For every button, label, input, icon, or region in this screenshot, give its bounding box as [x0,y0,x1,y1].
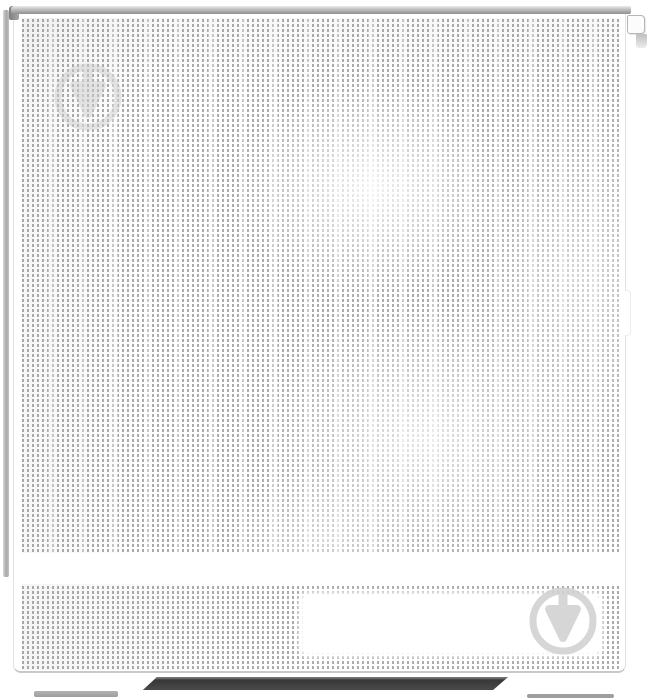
side-bump [625,290,631,336]
side-panel-latch-shadow [636,34,647,48]
watermark-logo-icon [525,583,601,659]
case-bottom-shadow [143,677,508,690]
watermark-logo-icon [50,59,126,135]
product-photo [0,0,654,700]
side-panel-latch [627,15,645,34]
left-foot-pad [34,691,118,697]
case-top-edge [11,6,631,14]
right-foot-pad [527,694,614,698]
case-left-side-edge [3,10,9,577]
